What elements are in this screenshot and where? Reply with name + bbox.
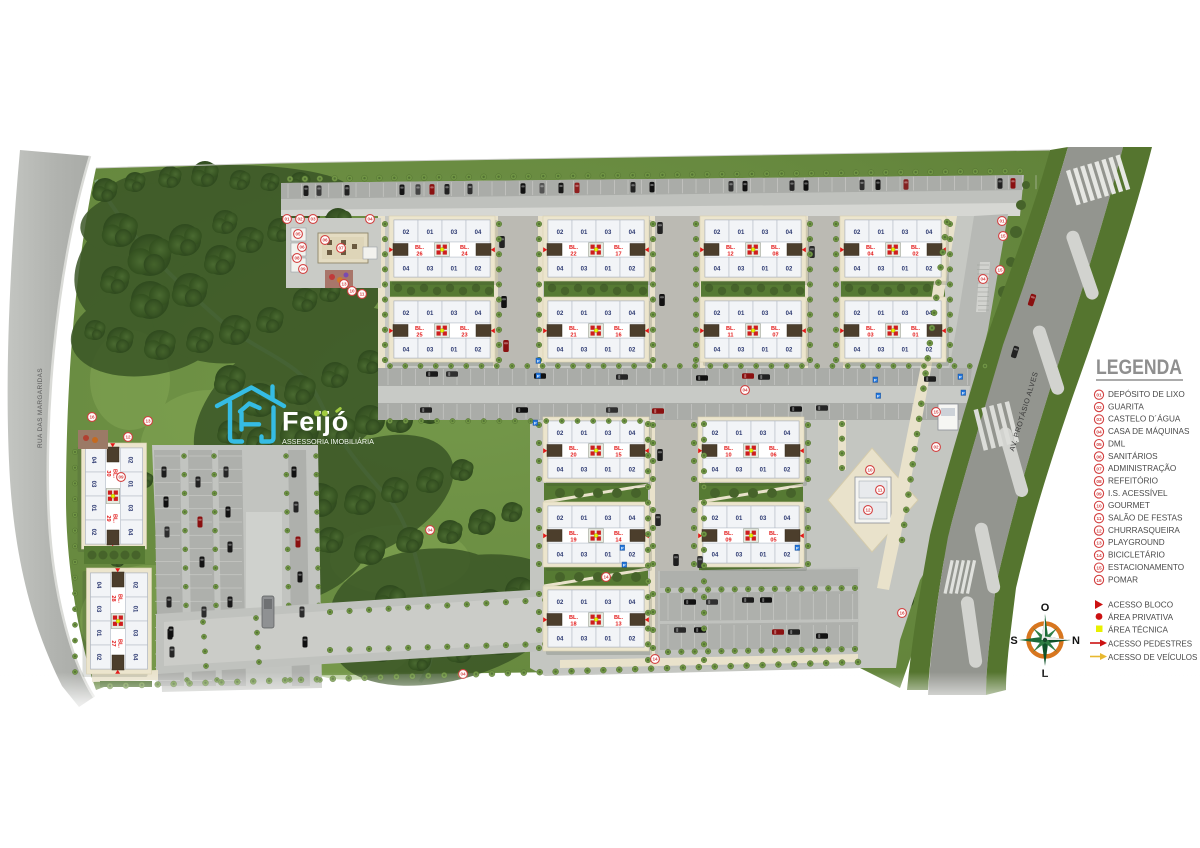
svg-text:03: 03: [90, 481, 96, 488]
svg-text:REFEITÓRIO: REFEITÓRIO: [1108, 475, 1158, 485]
svg-text:BL.: BL.: [116, 639, 122, 648]
svg-text:01: 01: [605, 637, 612, 643]
svg-text:BL.: BL.: [614, 446, 623, 452]
svg-text:04: 04: [126, 529, 132, 536]
svg-text:13: 13: [615, 622, 621, 628]
svg-text:03: 03: [736, 468, 743, 474]
svg-text:03: 03: [1096, 417, 1102, 423]
svg-text:04: 04: [854, 348, 861, 354]
svg-text:14: 14: [603, 575, 609, 580]
svg-text:03: 03: [605, 516, 612, 522]
svg-text:03: 03: [126, 505, 132, 512]
svg-text:02: 02: [786, 267, 793, 273]
svg-text:04: 04: [786, 311, 793, 317]
svg-text:02: 02: [297, 217, 303, 222]
svg-text:04: 04: [95, 582, 101, 589]
svg-text:BL.: BL.: [614, 326, 623, 332]
svg-text:19: 19: [570, 538, 576, 544]
svg-text:02: 02: [784, 553, 791, 559]
svg-text:12: 12: [1096, 528, 1102, 534]
svg-text:P: P: [796, 545, 799, 550]
svg-text:01: 01: [451, 267, 458, 273]
svg-text:BL.: BL.: [614, 245, 623, 251]
svg-text:BL.: BL.: [724, 531, 733, 537]
svg-text:PLAYGROUND: PLAYGROUND: [1108, 538, 1165, 547]
svg-text:BL.: BL.: [911, 326, 920, 332]
svg-text:02: 02: [714, 230, 721, 236]
svg-text:01: 01: [131, 606, 137, 613]
svg-text:03: 03: [581, 348, 588, 354]
svg-text:04: 04: [714, 348, 721, 354]
svg-text:15: 15: [933, 410, 939, 415]
svg-text:04: 04: [557, 468, 564, 474]
svg-text:04: 04: [557, 348, 564, 354]
svg-text:12: 12: [125, 435, 131, 440]
svg-text:01: 01: [738, 230, 745, 236]
svg-text:02: 02: [854, 230, 861, 236]
svg-text:26: 26: [416, 252, 422, 258]
svg-text:P: P: [874, 377, 877, 382]
svg-text:BL.: BL.: [771, 245, 780, 251]
svg-text:P: P: [877, 393, 880, 398]
svg-text:09: 09: [1096, 491, 1102, 497]
svg-text:P: P: [962, 390, 965, 395]
svg-text:03: 03: [427, 267, 434, 273]
svg-text:02: 02: [131, 582, 137, 589]
svg-text:04: 04: [557, 267, 564, 273]
svg-text:03: 03: [605, 311, 612, 317]
svg-text:30: 30: [105, 470, 111, 476]
svg-text:08: 08: [772, 252, 778, 258]
svg-text:16: 16: [89, 415, 95, 420]
svg-text:20: 20: [570, 453, 576, 459]
svg-text:06: 06: [299, 245, 305, 250]
svg-text:01: 01: [999, 219, 1005, 224]
svg-text:01: 01: [902, 267, 909, 273]
svg-text:04: 04: [629, 311, 636, 317]
svg-text:03: 03: [867, 333, 873, 339]
svg-text:02: 02: [629, 348, 636, 354]
svg-text:03: 03: [605, 230, 612, 236]
svg-text:BICICLETÁRIO: BICICLETÁRIO: [1108, 550, 1165, 560]
svg-text:13: 13: [341, 282, 347, 287]
svg-text:02: 02: [912, 252, 918, 258]
svg-text:14: 14: [615, 538, 622, 544]
svg-text:04: 04: [557, 553, 564, 559]
svg-text:01: 01: [427, 311, 434, 317]
svg-text:13: 13: [1096, 541, 1102, 547]
svg-text:BL.: BL.: [771, 326, 780, 332]
svg-text:03: 03: [760, 431, 767, 437]
svg-text:P: P: [623, 562, 626, 567]
svg-text:18: 18: [570, 622, 576, 628]
svg-text:16: 16: [1096, 578, 1102, 584]
svg-text:06: 06: [322, 238, 328, 243]
svg-text:10: 10: [867, 468, 873, 473]
svg-text:22: 22: [570, 252, 576, 258]
svg-text:04: 04: [712, 468, 719, 474]
svg-text:BL.: BL.: [569, 446, 578, 452]
svg-text:03: 03: [581, 553, 588, 559]
svg-text:04: 04: [427, 528, 433, 533]
svg-text:03: 03: [581, 468, 588, 474]
svg-text:11: 11: [1096, 516, 1101, 522]
svg-text:P: P: [534, 420, 537, 425]
svg-text:04: 04: [867, 252, 874, 258]
svg-text:04: 04: [557, 637, 564, 643]
svg-text:01: 01: [581, 516, 588, 522]
svg-text:17: 17: [615, 252, 621, 258]
svg-text:24: 24: [461, 252, 468, 258]
svg-text:DEPÓSITO DE LIXO: DEPÓSITO DE LIXO: [1108, 389, 1185, 399]
svg-text:02: 02: [403, 311, 410, 317]
svg-text:03: 03: [878, 348, 885, 354]
svg-text:S: S: [1010, 635, 1017, 647]
svg-text:CASA DE MÁQUINAS: CASA DE MÁQUINAS: [1108, 426, 1190, 436]
svg-text:01: 01: [95, 630, 101, 637]
svg-text:03: 03: [878, 267, 885, 273]
svg-text:14: 14: [652, 657, 658, 662]
svg-text:04: 04: [926, 230, 933, 236]
svg-text:BL.: BL.: [569, 245, 578, 251]
svg-text:01: 01: [427, 230, 434, 236]
svg-text:02: 02: [926, 267, 933, 273]
svg-text:01: 01: [878, 311, 885, 317]
svg-text:01: 01: [605, 348, 612, 354]
svg-text:DML: DML: [1108, 439, 1126, 448]
svg-text:02: 02: [933, 445, 939, 450]
svg-text:LEGENDA: LEGENDA: [1096, 356, 1182, 379]
svg-text:CASTELO D´ÁGUA: CASTELO D´ÁGUA: [1108, 414, 1181, 424]
svg-text:03: 03: [310, 217, 316, 222]
svg-text:BL.: BL.: [415, 245, 424, 251]
svg-text:03: 03: [760, 516, 767, 522]
svg-text:01: 01: [736, 431, 743, 437]
svg-text:04: 04: [629, 600, 636, 606]
svg-text:ÁREA PRIVATIVA: ÁREA PRIVATIVA: [1108, 612, 1174, 622]
svg-text:02: 02: [475, 348, 482, 354]
svg-text:01: 01: [878, 230, 885, 236]
svg-text:02: 02: [714, 311, 721, 317]
svg-text:04: 04: [784, 431, 791, 437]
svg-text:04: 04: [403, 267, 410, 273]
svg-text:ACESSO BLOCO: ACESSO BLOCO: [1108, 601, 1173, 610]
svg-text:ACESSO DE VEÍCULOS: ACESSO DE VEÍCULOS: [1108, 653, 1197, 662]
svg-text:04: 04: [854, 267, 861, 273]
svg-text:13: 13: [145, 419, 151, 424]
svg-text:I.S. ACESSÍVEL: I.S. ACESSÍVEL: [1108, 488, 1168, 498]
svg-text:ESTACIONAMENTO: ESTACIONAMENTO: [1108, 563, 1184, 572]
svg-text:GOURMET: GOURMET: [1108, 501, 1150, 510]
svg-text:02: 02: [95, 654, 101, 661]
svg-text:23: 23: [461, 333, 467, 339]
svg-text:02: 02: [629, 267, 636, 273]
svg-text:02: 02: [629, 468, 636, 474]
svg-text:ÁREA TÉCNICA: ÁREA TÉCNICA: [1108, 624, 1168, 634]
svg-text:BL.: BL.: [866, 245, 875, 251]
svg-text:03: 03: [451, 311, 458, 317]
svg-text:03: 03: [902, 311, 909, 317]
svg-text:POMAR: POMAR: [1108, 575, 1138, 584]
svg-text:02: 02: [854, 311, 861, 317]
svg-text:02: 02: [784, 468, 791, 474]
svg-text:01: 01: [581, 311, 588, 317]
svg-text:03: 03: [738, 348, 745, 354]
svg-text:05: 05: [295, 232, 301, 237]
svg-text:02: 02: [557, 230, 564, 236]
svg-text:04: 04: [367, 217, 373, 222]
svg-text:P: P: [537, 373, 540, 378]
svg-text:01: 01: [90, 505, 96, 512]
svg-text:BL.: BL.: [116, 594, 122, 603]
svg-text:05: 05: [1096, 442, 1102, 448]
svg-text:04: 04: [712, 553, 719, 559]
svg-text:04: 04: [90, 457, 96, 464]
svg-text:04: 04: [629, 431, 636, 437]
svg-text:04: 04: [475, 230, 482, 236]
svg-text:01: 01: [902, 348, 909, 354]
svg-text:BL.: BL.: [769, 446, 778, 452]
svg-text:03: 03: [736, 553, 743, 559]
svg-text:15: 15: [615, 453, 621, 459]
svg-text:02: 02: [403, 230, 410, 236]
svg-text:04: 04: [629, 516, 636, 522]
svg-text:21: 21: [570, 333, 576, 339]
svg-text:BL.: BL.: [111, 514, 117, 523]
svg-text:02: 02: [557, 600, 564, 606]
svg-text:12: 12: [727, 252, 733, 258]
svg-text:03: 03: [605, 600, 612, 606]
svg-text:02: 02: [475, 267, 482, 273]
svg-text:BL.: BL.: [460, 326, 469, 332]
svg-text:ADMINISTRAÇÃO: ADMINISTRAÇÃO: [1108, 463, 1176, 473]
svg-text:10: 10: [725, 453, 731, 459]
svg-text:BL.: BL.: [569, 326, 578, 332]
svg-text:02: 02: [557, 311, 564, 317]
svg-text:03: 03: [451, 230, 458, 236]
svg-text:N: N: [1072, 635, 1080, 647]
svg-text:14: 14: [1096, 553, 1102, 559]
svg-text:SANITÁRIOS: SANITÁRIOS: [1108, 451, 1158, 461]
svg-text:10: 10: [1096, 504, 1102, 510]
svg-text:03: 03: [581, 267, 588, 273]
svg-text:12: 12: [865, 508, 871, 513]
svg-text:06: 06: [1096, 454, 1102, 460]
svg-text:03: 03: [131, 630, 137, 637]
svg-text:16: 16: [615, 333, 621, 339]
svg-text:02: 02: [629, 553, 636, 559]
svg-text:BL.: BL.: [769, 531, 778, 537]
svg-text:BL.: BL.: [415, 326, 424, 332]
svg-text:15: 15: [997, 268, 1003, 273]
svg-text:GUARITA: GUARITA: [1108, 402, 1144, 411]
svg-text:04: 04: [742, 388, 748, 393]
svg-text:ACESSO PEDESTRES: ACESSO PEDESTRES: [1108, 639, 1192, 648]
svg-text:02: 02: [926, 348, 933, 354]
svg-text:03: 03: [738, 267, 745, 273]
svg-text:07: 07: [772, 333, 778, 339]
svg-text:01: 01: [760, 468, 767, 474]
svg-text:02: 02: [629, 637, 636, 643]
svg-text:SALÃO DE FESTAS: SALÃO DE FESTAS: [1108, 513, 1183, 523]
svg-text:04: 04: [475, 311, 482, 317]
svg-text:02: 02: [712, 431, 719, 437]
svg-text:BL.: BL.: [614, 531, 623, 537]
svg-text:ASSESSORIA IMOBILIÁRIA: ASSESSORIA IMOBILIÁRIA: [282, 437, 374, 446]
svg-text:04: 04: [1096, 430, 1102, 436]
svg-text:07: 07: [338, 246, 344, 251]
svg-text:BL.: BL.: [724, 446, 733, 452]
svg-text:CHURRASQUEIRA: CHURRASQUEIRA: [1108, 526, 1180, 535]
svg-text:BL.: BL.: [911, 245, 920, 251]
svg-text:08: 08: [1096, 479, 1102, 485]
svg-text:03: 03: [605, 431, 612, 437]
svg-text:04: 04: [131, 654, 137, 661]
svg-text:03: 03: [762, 311, 769, 317]
svg-text:07: 07: [1096, 467, 1102, 473]
svg-text:15: 15: [1096, 565, 1102, 571]
svg-text:11: 11: [728, 333, 734, 339]
svg-text:02: 02: [126, 457, 132, 464]
svg-text:03: 03: [427, 348, 434, 354]
svg-text:BL.: BL.: [569, 615, 578, 621]
svg-text:04: 04: [980, 277, 986, 282]
svg-text:01: 01: [605, 468, 612, 474]
svg-text:01: 01: [736, 516, 743, 522]
svg-text:01: 01: [605, 553, 612, 559]
svg-text:01: 01: [126, 481, 132, 488]
svg-text:P: P: [537, 358, 540, 363]
svg-text:27: 27: [110, 640, 116, 646]
svg-text:01: 01: [581, 230, 588, 236]
svg-text:06: 06: [770, 453, 776, 459]
svg-text:02: 02: [1096, 405, 1102, 411]
svg-text:O: O: [1041, 602, 1050, 614]
svg-text:01: 01: [762, 267, 769, 273]
svg-text:BL.: BL.: [460, 245, 469, 251]
svg-text:RUA DAS MARGARIDAS: RUA DAS MARGARIDAS: [37, 368, 44, 448]
svg-text:01: 01: [581, 600, 588, 606]
svg-text:03: 03: [902, 230, 909, 236]
svg-text:04: 04: [786, 230, 793, 236]
svg-text:02: 02: [557, 431, 564, 437]
svg-text:BL.: BL.: [569, 531, 578, 537]
svg-text:05: 05: [770, 538, 776, 544]
svg-text:01: 01: [605, 267, 612, 273]
svg-text:09: 09: [118, 475, 124, 480]
svg-text:09: 09: [725, 538, 731, 544]
svg-text:04: 04: [714, 267, 721, 273]
svg-text:28: 28: [110, 595, 116, 601]
svg-text:02: 02: [557, 516, 564, 522]
svg-text:04: 04: [629, 230, 636, 236]
svg-text:04: 04: [403, 348, 410, 354]
svg-text:P: P: [621, 545, 624, 550]
svg-text:BL.: BL.: [726, 326, 735, 332]
svg-text:01: 01: [760, 553, 767, 559]
svg-text:03: 03: [581, 637, 588, 643]
svg-text:01: 01: [1096, 393, 1102, 399]
svg-text:10: 10: [349, 289, 355, 294]
svg-text:02: 02: [712, 516, 719, 522]
svg-text:04: 04: [784, 516, 791, 522]
svg-text:BL.: BL.: [614, 615, 623, 621]
svg-text:03: 03: [762, 230, 769, 236]
svg-text:16: 16: [899, 611, 905, 616]
svg-text:03: 03: [95, 606, 101, 613]
svg-text:01: 01: [912, 333, 918, 339]
svg-text:02: 02: [90, 529, 96, 536]
svg-text:29: 29: [105, 515, 111, 521]
svg-text:09: 09: [300, 267, 306, 272]
svg-text:01: 01: [762, 348, 769, 354]
svg-text:25: 25: [416, 333, 422, 339]
svg-text:01: 01: [284, 217, 290, 222]
svg-text:01: 01: [451, 348, 458, 354]
svg-text:P: P: [959, 374, 962, 379]
svg-text:15: 15: [1000, 234, 1006, 239]
svg-text:01: 01: [738, 311, 745, 317]
svg-text:08: 08: [294, 256, 300, 261]
svg-text:01: 01: [581, 431, 588, 437]
svg-text:BL.: BL.: [866, 326, 875, 332]
svg-text:11: 11: [878, 488, 883, 493]
svg-text:11: 11: [360, 292, 365, 297]
svg-text:02: 02: [786, 348, 793, 354]
svg-text:BL.: BL.: [726, 245, 735, 251]
